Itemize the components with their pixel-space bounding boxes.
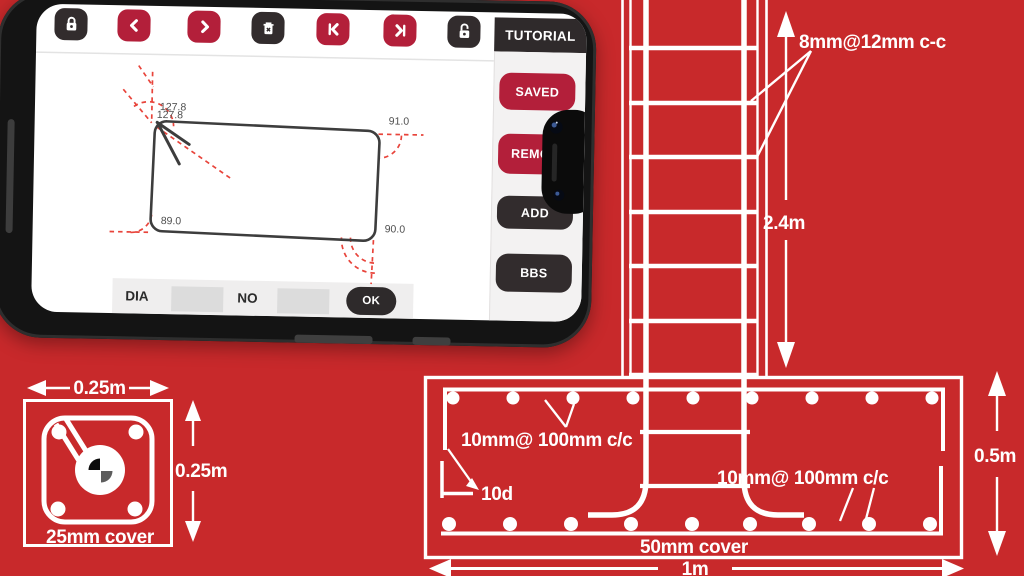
drawn-bar-shape[interactable] xyxy=(150,121,380,241)
drawing-canvas[interactable]: 127.8 127.8 91.0 89.0 90.0 xyxy=(31,4,587,323)
leader-line xyxy=(545,400,566,427)
footing-width-dimension: 1m xyxy=(429,559,964,576)
phone-volume-button xyxy=(412,337,450,346)
arrow-down-icon xyxy=(185,521,201,542)
thumbnail-stage: 8mm@12mm c-c 2.4m xyxy=(0,0,1024,576)
leader-line xyxy=(566,404,574,427)
angle-value: 91.0 xyxy=(389,115,410,127)
column-height-label: 2.4m xyxy=(763,213,805,234)
footing-cover-label: 50mm cover xyxy=(640,537,749,558)
leader-line xyxy=(757,51,811,157)
footing-bottom-bar-dots xyxy=(442,517,937,531)
notch-speaker-slit xyxy=(552,144,558,182)
footing-depth-label: 0.5m xyxy=(974,446,1016,467)
footing-top-bar-dots xyxy=(447,392,939,405)
main-bar-right xyxy=(744,0,804,515)
angle-value: 89.0 xyxy=(161,215,182,227)
section-width-dimension: 0.25m xyxy=(27,378,169,399)
arrow-down-icon xyxy=(777,342,795,368)
column-height-dimension: 2.4m xyxy=(763,11,805,368)
camera-icon xyxy=(553,190,564,201)
column-ties-callout: 8mm@12mm c-c xyxy=(751,32,947,157)
arrow-down-icon xyxy=(988,531,1006,556)
footing-top-bars-label: 10mm@ 100mm c/c xyxy=(461,430,633,451)
leader-line xyxy=(866,488,874,519)
section-height-label: 0.25m xyxy=(175,461,227,482)
dia-label: DIA xyxy=(125,288,149,303)
column-ties-label: 8mm@12mm c-c xyxy=(799,32,947,53)
ok-button-label: OK xyxy=(362,295,380,307)
phone-speaker-slit xyxy=(6,119,15,233)
footing-width-label: 1m xyxy=(682,559,709,576)
phone-screen: 127.8 127.8 91.0 89.0 90.0 xyxy=(31,4,587,323)
leader-line xyxy=(840,488,853,521)
leader-arrow-icon xyxy=(466,478,479,490)
phone-mockup: 127.8 127.8 91.0 89.0 90.0 xyxy=(0,0,597,348)
footing-depth-dimension: 0.5m xyxy=(974,371,1016,556)
arrow-right-icon xyxy=(942,559,964,576)
no-label: NO xyxy=(237,290,258,305)
section-width-label: 0.25m xyxy=(73,378,125,399)
column-elevation: 8mm@12mm c-c 2.4m xyxy=(588,0,947,515)
footing-section: 10mm@ 100mm c/c 10d 10mm@ 100mm c/c 50mm… xyxy=(426,371,1017,576)
arrow-up-icon xyxy=(185,400,201,421)
footing-top-bars-callout: 10mm@ 100mm c/c xyxy=(461,400,633,451)
column-cross-section: 0.25m 0.25m xyxy=(25,378,228,548)
ok-button[interactable]: OK xyxy=(346,287,397,316)
arrow-left-icon xyxy=(429,559,451,576)
arrow-right-icon xyxy=(150,380,169,396)
angle-value: 90.0 xyxy=(385,223,406,235)
toolbar-divider xyxy=(36,52,494,61)
arrow-up-icon xyxy=(988,371,1006,396)
arrow-left-icon xyxy=(27,380,46,396)
phone-power-button xyxy=(294,335,372,344)
section-cover-label: 25mm cover xyxy=(46,527,155,548)
leader-line xyxy=(448,449,472,483)
section-height-dimension: 0.25m xyxy=(175,400,227,542)
arrow-up-icon xyxy=(777,11,795,37)
no-input[interactable] xyxy=(277,288,329,314)
leader-line xyxy=(751,51,811,101)
footing-bottom-bars-label: 10mm@ 100mm c/c xyxy=(717,468,889,489)
hook-length-callout: 10d xyxy=(448,449,513,505)
dia-input[interactable] xyxy=(171,286,223,312)
bar-hook-stroke xyxy=(155,122,190,164)
camera-icon xyxy=(550,120,563,133)
camera-notch xyxy=(541,109,587,214)
angle-value: 127.8 xyxy=(157,109,184,122)
hook-length-label: 10d xyxy=(481,484,513,505)
